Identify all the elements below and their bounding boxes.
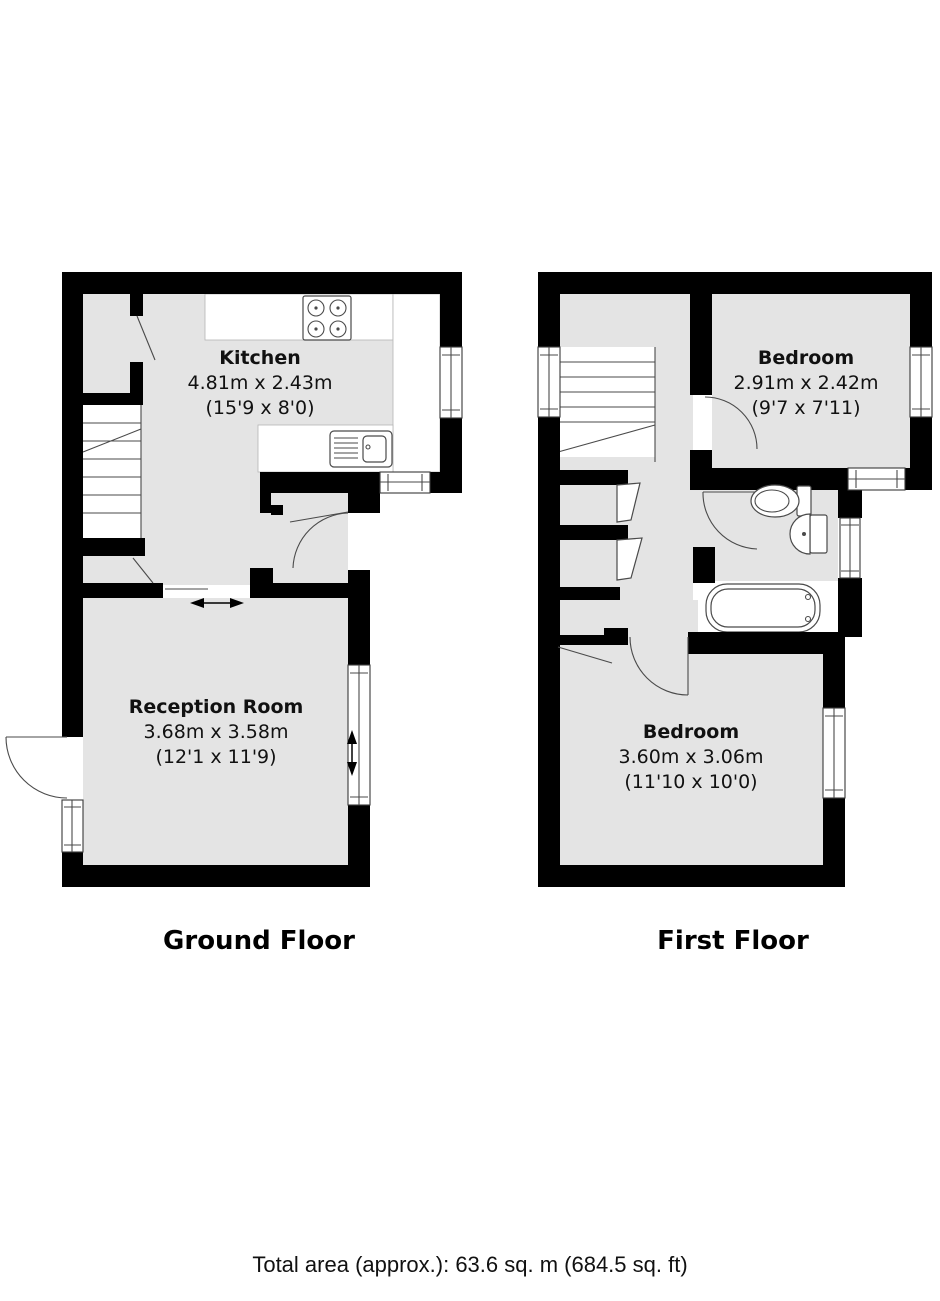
room-dim-metric: 3.68m x 3.58m bbox=[129, 720, 304, 745]
stove-icon bbox=[303, 296, 351, 340]
window-reception-left bbox=[62, 800, 83, 852]
total-area-text: Total area (approx.): 63.6 sq. m (684.5 … bbox=[252, 1252, 687, 1278]
ff-wall-bath-divider bbox=[688, 632, 845, 654]
gf-wall-left bbox=[62, 294, 83, 737]
floorplan-drawing bbox=[0, 0, 940, 1301]
ff-landing-floor bbox=[558, 294, 693, 635]
staircase-first bbox=[558, 347, 655, 462]
front-door bbox=[6, 737, 67, 798]
ff-wall-bottom bbox=[538, 865, 845, 887]
window-kitchen-bottom bbox=[380, 472, 430, 493]
room-label-bedroom2: Bedroom 3.60m x 3.06m (11'10 x 10'0) bbox=[619, 720, 764, 795]
gf-wall-reception-top bbox=[83, 583, 163, 598]
gf-wall-kitchen-bottom bbox=[260, 472, 380, 493]
room-dim-metric: 3.60m x 3.06m bbox=[619, 745, 764, 770]
room-name: Bedroom bbox=[734, 346, 879, 371]
ff-wall-right bbox=[910, 294, 932, 347]
window-bedroom1-right bbox=[910, 347, 932, 417]
room-name: Kitchen bbox=[188, 346, 333, 371]
gf-wall-top bbox=[62, 272, 462, 294]
gf-wall-bottom bbox=[62, 865, 370, 887]
ff-wall-bedroom1-left bbox=[690, 294, 712, 395]
ground-floor-title: Ground Floor bbox=[163, 926, 355, 956]
room-dim-metric: 2.91m x 2.42m bbox=[734, 371, 879, 396]
floorplan-page: Kitchen 4.81m x 2.43m (15'9 x 8'0) Recep… bbox=[0, 0, 940, 1301]
room-label-bedroom1: Bedroom 2.91m x 2.42m (9'7 x 7'11) bbox=[734, 346, 879, 421]
window-bedroom2-right bbox=[823, 708, 845, 798]
room-dim-imperial: (15'9 x 8'0) bbox=[188, 396, 333, 421]
gf-wall-right-lower bbox=[348, 570, 370, 665]
room-label-reception: Reception Room 3.68m x 3.58m (12'1 x 11'… bbox=[129, 695, 304, 770]
room-dim-imperial: (9'7 x 7'11) bbox=[734, 396, 879, 421]
window-stairs-left bbox=[538, 347, 560, 417]
window-bedroom1-bottom bbox=[848, 468, 905, 490]
room-label-kitchen: Kitchen 4.81m x 2.43m (15'9 x 8'0) bbox=[188, 346, 333, 421]
toilet-icon bbox=[751, 485, 811, 517]
room-name: Reception Room bbox=[129, 695, 304, 720]
kitchen-counter-right bbox=[393, 294, 440, 472]
gf-wall-right-kitchen bbox=[440, 294, 462, 347]
room-dim-imperial: (11'10 x 10'0) bbox=[619, 770, 764, 795]
ff-wall-bathroom-right bbox=[838, 490, 862, 518]
kitchen-counter-top bbox=[205, 294, 393, 340]
window-bathroom-right bbox=[840, 518, 860, 578]
bathtub-icon bbox=[706, 584, 820, 632]
first-floor-title: First Floor bbox=[657, 926, 809, 956]
window-kitchen-right bbox=[440, 347, 462, 418]
sink-icon bbox=[330, 431, 392, 467]
basin-icon bbox=[790, 514, 827, 554]
room-dim-imperial: (12'1 x 11'9) bbox=[129, 745, 304, 770]
room-dim-metric: 4.81m x 2.43m bbox=[188, 371, 333, 396]
ff-wall-top bbox=[538, 272, 932, 294]
ff-wall-left bbox=[538, 294, 560, 347]
room-name: Bedroom bbox=[619, 720, 764, 745]
staircase-ground bbox=[83, 405, 141, 538]
